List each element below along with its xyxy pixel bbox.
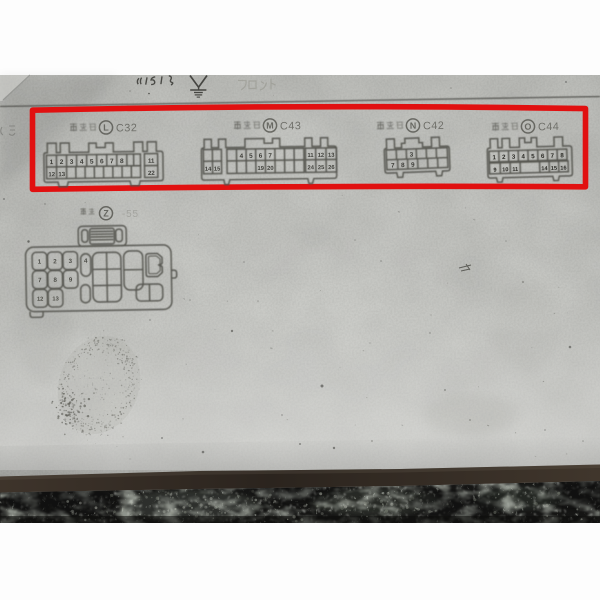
svg-text:L: L	[103, 123, 109, 133]
svg-text:19: 19	[257, 166, 264, 172]
svg-text:O: O	[524, 122, 531, 132]
svg-text:C43: C43	[280, 120, 301, 132]
svg-text:4: 4	[80, 159, 84, 166]
svg-text:C44: C44	[538, 121, 560, 134]
svg-text:-55: -55	[122, 209, 139, 220]
svg-text:20: 20	[267, 166, 274, 172]
svg-text:4: 4	[240, 153, 244, 160]
svg-text:9: 9	[493, 168, 496, 174]
svg-text:M: M	[266, 121, 274, 131]
svg-text:14: 14	[205, 167, 212, 173]
svg-text:5: 5	[249, 153, 253, 160]
svg-text:11: 11	[512, 167, 518, 173]
svg-text:22: 22	[148, 170, 155, 177]
svg-text:15: 15	[551, 166, 557, 172]
svg-text:2: 2	[60, 159, 64, 166]
svg-text:N: N	[410, 121, 417, 131]
svg-text:C32: C32	[116, 122, 137, 134]
svg-text:26: 26	[328, 165, 335, 171]
svg-text:1: 1	[50, 159, 54, 166]
svg-text:12: 12	[318, 153, 325, 159]
svg-text:15: 15	[214, 167, 221, 173]
svg-text:13: 13	[328, 153, 335, 159]
svg-text:7: 7	[268, 153, 272, 160]
svg-text:11: 11	[148, 158, 155, 165]
svg-text:8: 8	[120, 158, 124, 165]
svg-text:7: 7	[110, 158, 114, 165]
svg-text:25: 25	[318, 165, 325, 171]
svg-text:5: 5	[90, 159, 94, 166]
svg-text:11: 11	[307, 153, 314, 159]
svg-text:Z: Z	[103, 209, 109, 219]
svg-text:C42: C42	[423, 120, 445, 133]
svg-text:14: 14	[541, 166, 548, 172]
svg-text:12: 12	[48, 171, 55, 178]
svg-text:24: 24	[307, 165, 314, 171]
svg-text:3: 3	[70, 159, 74, 166]
svg-text:6: 6	[259, 153, 263, 160]
svg-text:16: 16	[560, 166, 566, 172]
svg-text:13: 13	[58, 171, 65, 178]
svg-text:10: 10	[502, 167, 508, 173]
svg-text:6: 6	[100, 158, 104, 165]
